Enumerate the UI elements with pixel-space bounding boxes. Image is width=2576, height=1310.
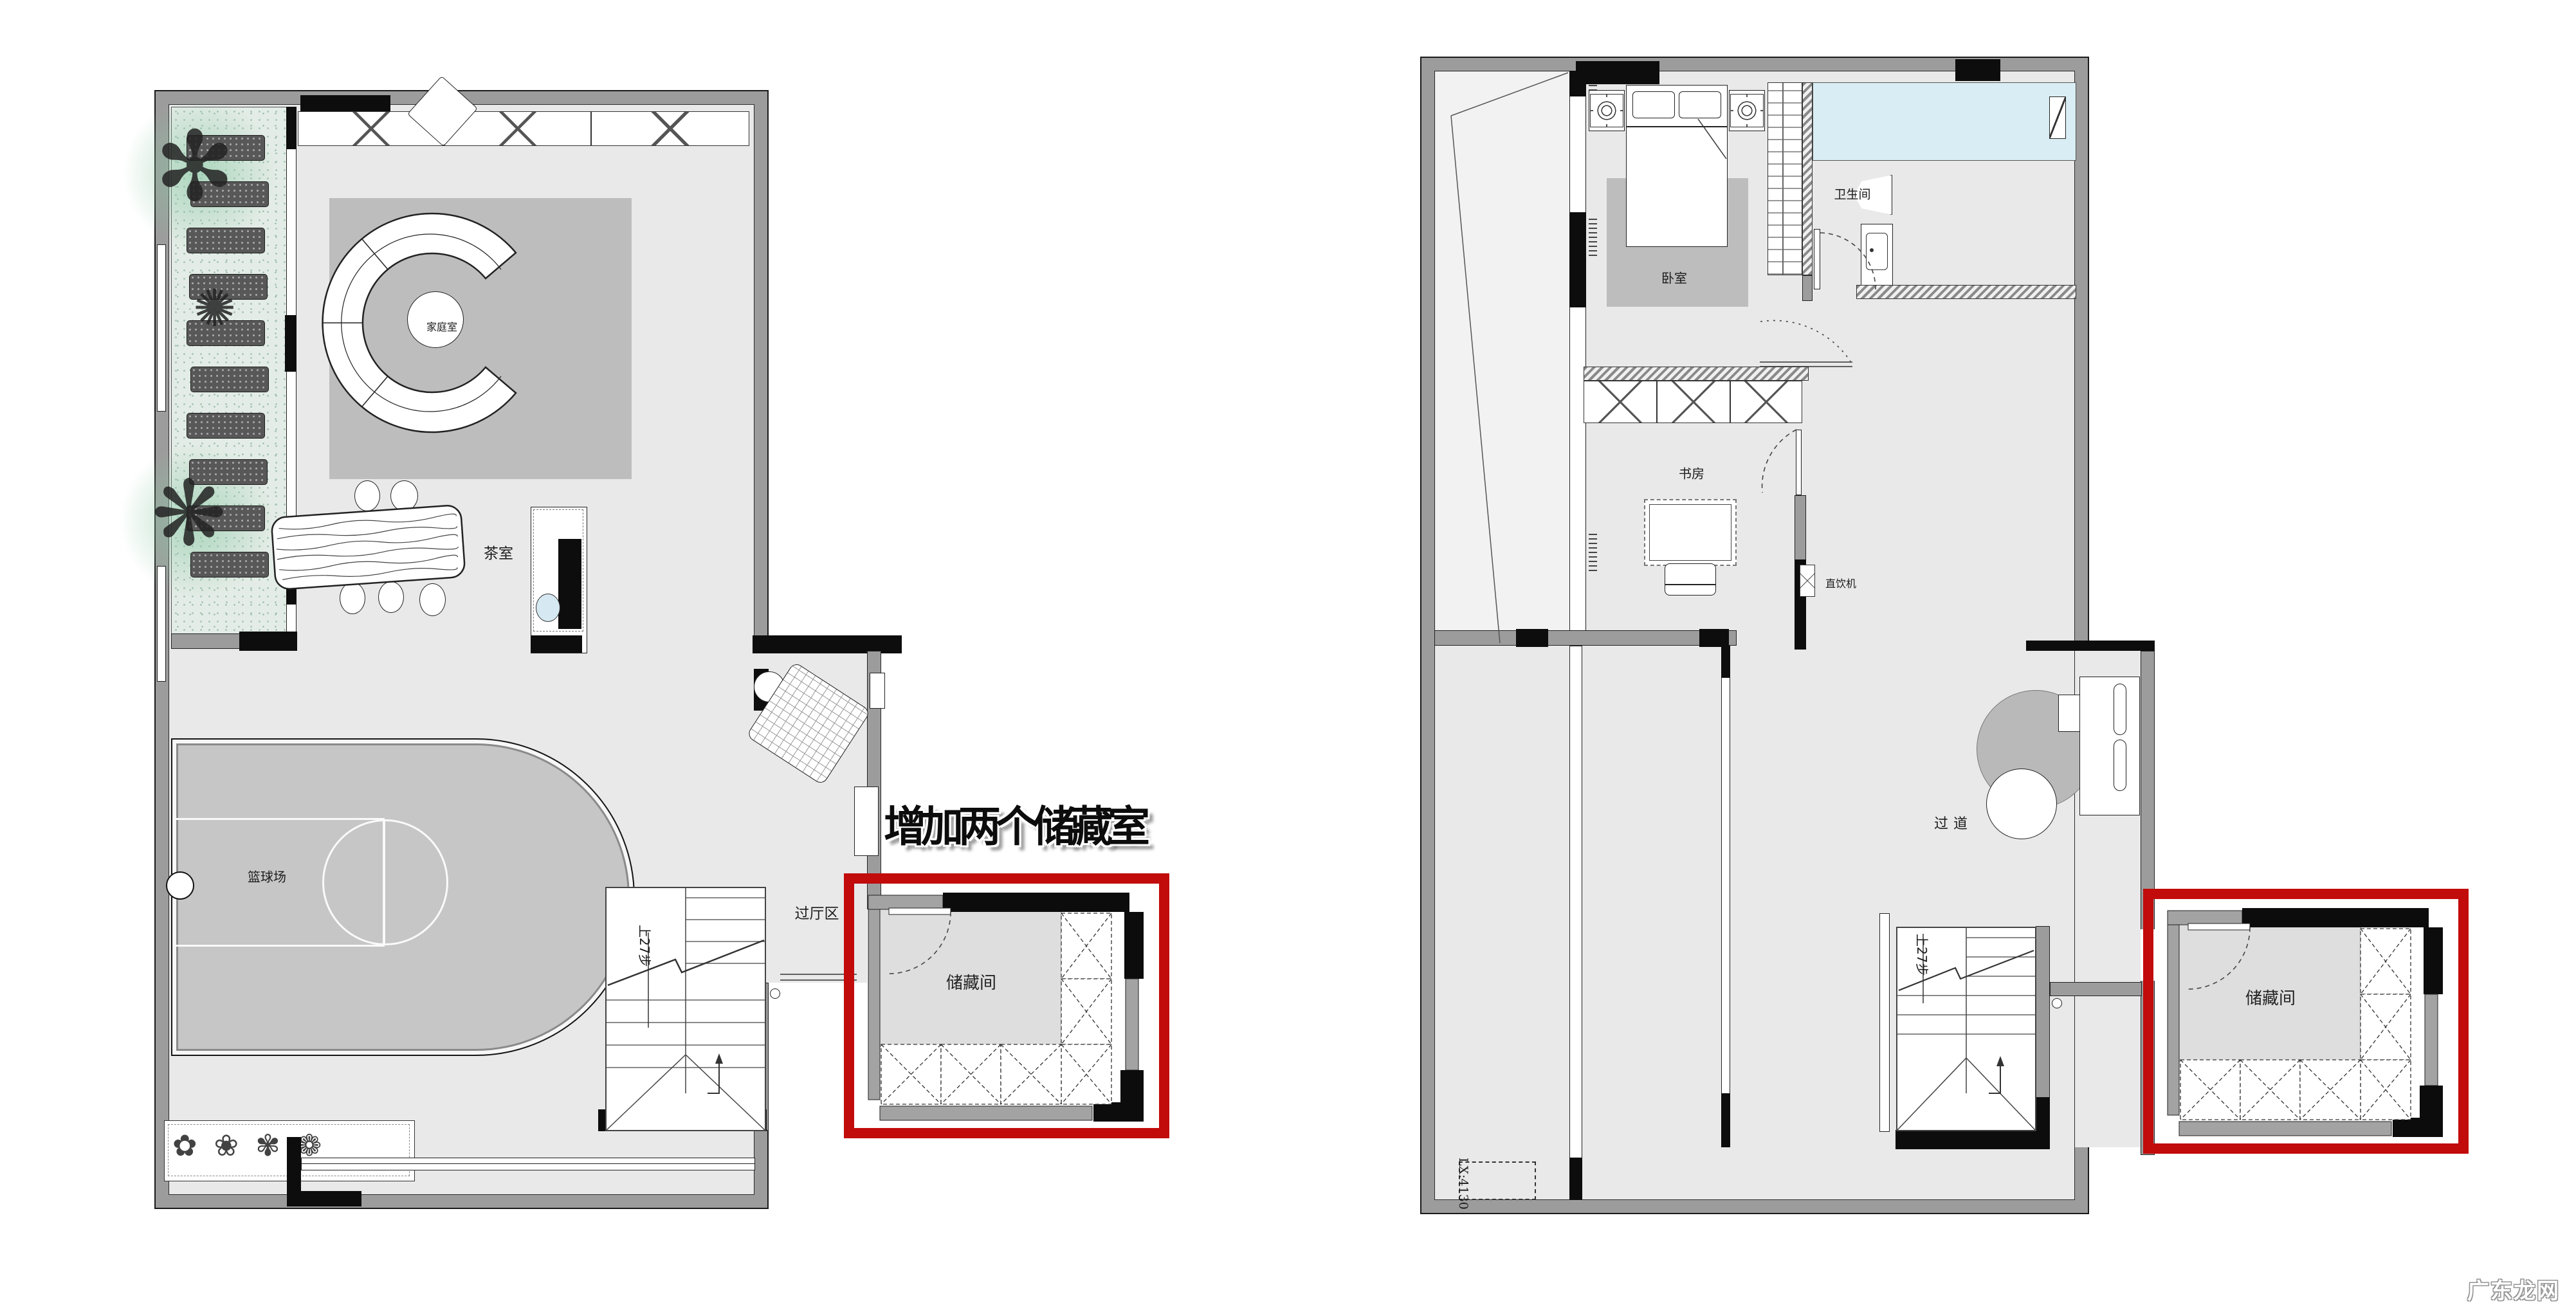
tea-room-label: 茶室 [484,541,513,563]
storage-room-label: 储藏间 [2245,989,2296,1008]
door-arc [1762,430,1796,493]
door-arc [1820,233,1876,289]
storage-room-left: 储藏间 [843,869,1172,1146]
hall-area-label: 过厅区 [795,901,839,923]
dimension-label: LX:4130 [1456,1158,1470,1210]
stairs-label-right: 上27步 [1914,934,1932,976]
corridor-label: 过道 [1934,812,1973,833]
door-arc [1760,320,1850,361]
bed-fold-line [1698,119,1726,159]
study-label: 书房 [1679,464,1704,482]
floorplan-canvas: ✻ ✺ ❋ ✿❀✾❁ [0,0,2576,1310]
storage-room-label: 储藏间 [946,974,996,993]
slope-line [1451,73,1568,116]
slope-line [1451,116,1500,643]
bathroom-label: 卫生间 [1834,185,1870,203]
storage-room-right: 储藏间 [2142,885,2471,1161]
basketball-court-label: 篮球场 [248,867,286,886]
wood-table [271,505,465,590]
curved-sofa [323,214,516,432]
annotation-text: 增加两个储藏室 [884,792,1145,854]
stairs-label-left: 上27步 [636,925,655,967]
watermark: 广东龙网 [2373,1273,2560,1305]
bedroom-label: 卧室 [1661,268,1687,287]
family-room-label: 家庭室 [426,318,457,334]
stairs-left [606,887,765,1131]
water-dispenser-label: 直饮机 [1825,575,1856,590]
